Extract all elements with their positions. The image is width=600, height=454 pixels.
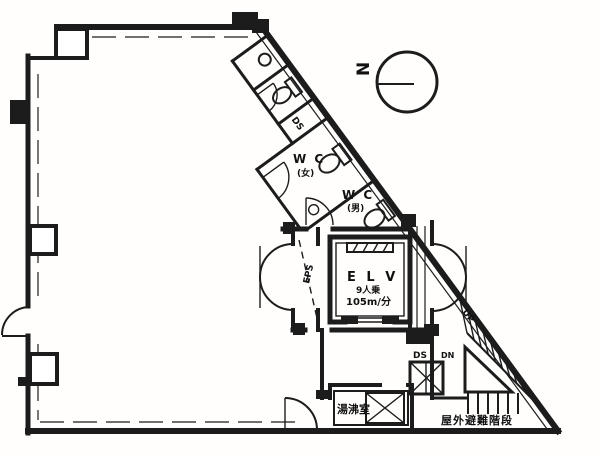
compass-circle: [377, 52, 437, 112]
office-double-doors: [260, 244, 293, 310]
cleaning-sink: [256, 51, 273, 68]
corner-column: [56, 29, 87, 58]
north-compass: N: [354, 52, 437, 112]
wc-male-label: W C: [342, 188, 374, 202]
pipe-shaft: [410, 362, 443, 394]
compass-north-label: N: [354, 62, 374, 76]
ds-band-label: DS: [289, 115, 305, 132]
wall-column: [30, 226, 56, 254]
lower-office-door: [285, 398, 317, 430]
wall-tick: [18, 377, 31, 386]
wc-male-sub: (男): [347, 203, 364, 214]
lower-service-area: DS DN 湯沸室: [285, 331, 466, 430]
elevator-label: E L V: [347, 270, 398, 285]
wc-female-sub: (女): [297, 167, 314, 179]
eps-label: EPS: [302, 264, 316, 285]
dn-label: DN: [441, 351, 454, 360]
wash-basin: [307, 203, 321, 217]
kitchen-label: 湯沸室: [337, 402, 370, 416]
floor-plan-drawing: N DS W C (女) W C (男): [0, 0, 600, 454]
exterior-door: [2, 307, 30, 336]
floor-plan: N DS W C (女) W C (男): [0, 0, 600, 454]
elevator-speed: 105m/分: [346, 295, 391, 308]
vent-hatch: [347, 243, 393, 252]
exit-stairs-label: 屋外避難階段: [441, 413, 513, 427]
elevator-shaft: E L V 9人乗 105m/分: [330, 237, 410, 324]
wall-column: [30, 354, 57, 384]
ds-shaft-label: DS: [413, 351, 427, 361]
junction-column: [252, 19, 269, 33]
wc-door-swing: [263, 162, 299, 198]
sink: [366, 393, 404, 423]
wc-female-label: W C: [293, 152, 325, 166]
toilet: [270, 84, 294, 107]
evacuation-stairs: UP 屋外避難階段: [441, 298, 538, 427]
elevator-capacity: 9人乗: [356, 284, 381, 296]
window-tab: [10, 100, 27, 124]
kitchenette: 湯沸室: [330, 385, 412, 428]
